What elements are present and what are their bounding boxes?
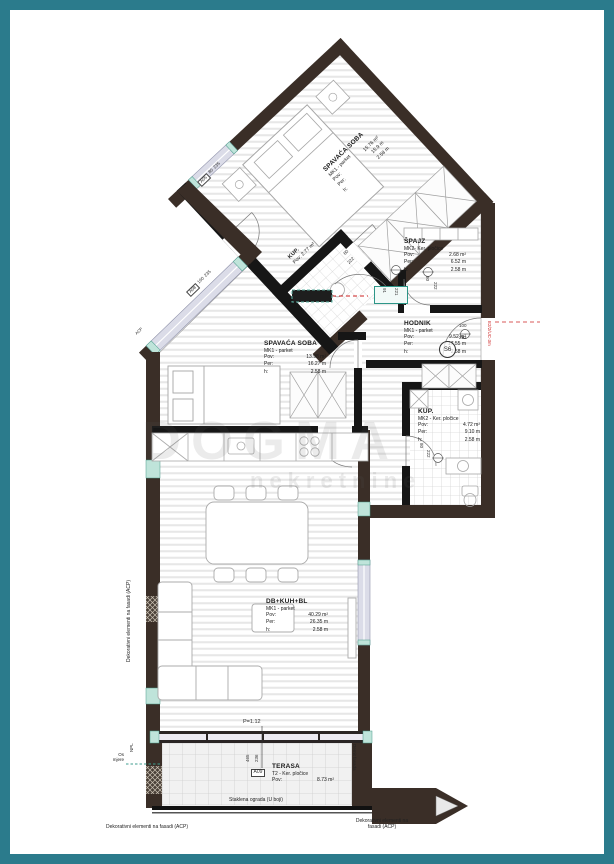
window-a09-parapet: P=1.12 bbox=[243, 719, 261, 725]
note-deco-bottom-left: Dekorativni elementi na fasadi (ACP) bbox=[106, 824, 188, 830]
note-deco-bottom-right: Dekorativni elementi na fasadi (ACP) bbox=[342, 818, 422, 831]
room-label-living: DB+KUH+BL MK1 - parket Pov:40.29 m² Per:… bbox=[266, 598, 328, 634]
window-a09-d2: 236 bbox=[255, 754, 260, 762]
kitchen bbox=[152, 433, 368, 461]
note-os: Os mjere bbox=[110, 752, 124, 762]
room-tag-s6: S6 bbox=[439, 341, 456, 358]
room-label-hall: HODNIK MK1 - parket Pov:9.52 m² Per:17.5… bbox=[404, 320, 466, 356]
room-label-bedroom-mid: SPAVAĆA SOBA MK1 - parket Pov:13.98 m² P… bbox=[264, 340, 326, 376]
door-dim-pantry-w: 80 bbox=[424, 276, 429, 281]
floorplan-page: DOGMA nekretnine SPAVAĆA SOBA MK1 - park… bbox=[0, 0, 614, 864]
note-deco-left: Dekorativni elementi na fasadi (ACP) bbox=[126, 580, 132, 662]
terrace-window-band bbox=[150, 731, 372, 743]
door-dim-bath-w: 80 bbox=[418, 443, 423, 448]
door-dim-hall-w: 100 bbox=[459, 324, 467, 329]
room-label-pantry: ŠPAJZ MK2- Ker. pločice Pov:2.68 m² Per:… bbox=[404, 238, 466, 274]
door-dim-bath-h: 222 bbox=[425, 450, 430, 458]
note-glass-railing: Staklena ograda (U boji) bbox=[229, 797, 283, 803]
unit-code: E2/2/UC-3m bbox=[486, 321, 491, 346]
entry-door-h: 221 bbox=[393, 288, 398, 296]
entry-door-box bbox=[374, 286, 408, 304]
window-a09-d1: 465 bbox=[246, 754, 251, 762]
door-dim-hall-h: 222 bbox=[459, 336, 467, 341]
entry-door-w: 91 bbox=[381, 288, 386, 293]
note-npl: NPL bbox=[129, 743, 134, 752]
window-a09-mark: A09 bbox=[251, 769, 265, 777]
door-dim-pantry-h: 222 bbox=[432, 282, 437, 290]
dining-set bbox=[206, 486, 308, 582]
note-demit: Demit fasada bbox=[352, 744, 357, 771]
glass-railing bbox=[152, 806, 372, 814]
floorplan-drawing bbox=[0, 0, 614, 864]
room-label-bathroom: KUP. MK2 - Ker. pločice Pov:4.72 m² Per:… bbox=[418, 408, 480, 444]
room-label-terrace: TERASA T2 - Ker. pločice Pov:8.73 m² bbox=[272, 763, 334, 784]
